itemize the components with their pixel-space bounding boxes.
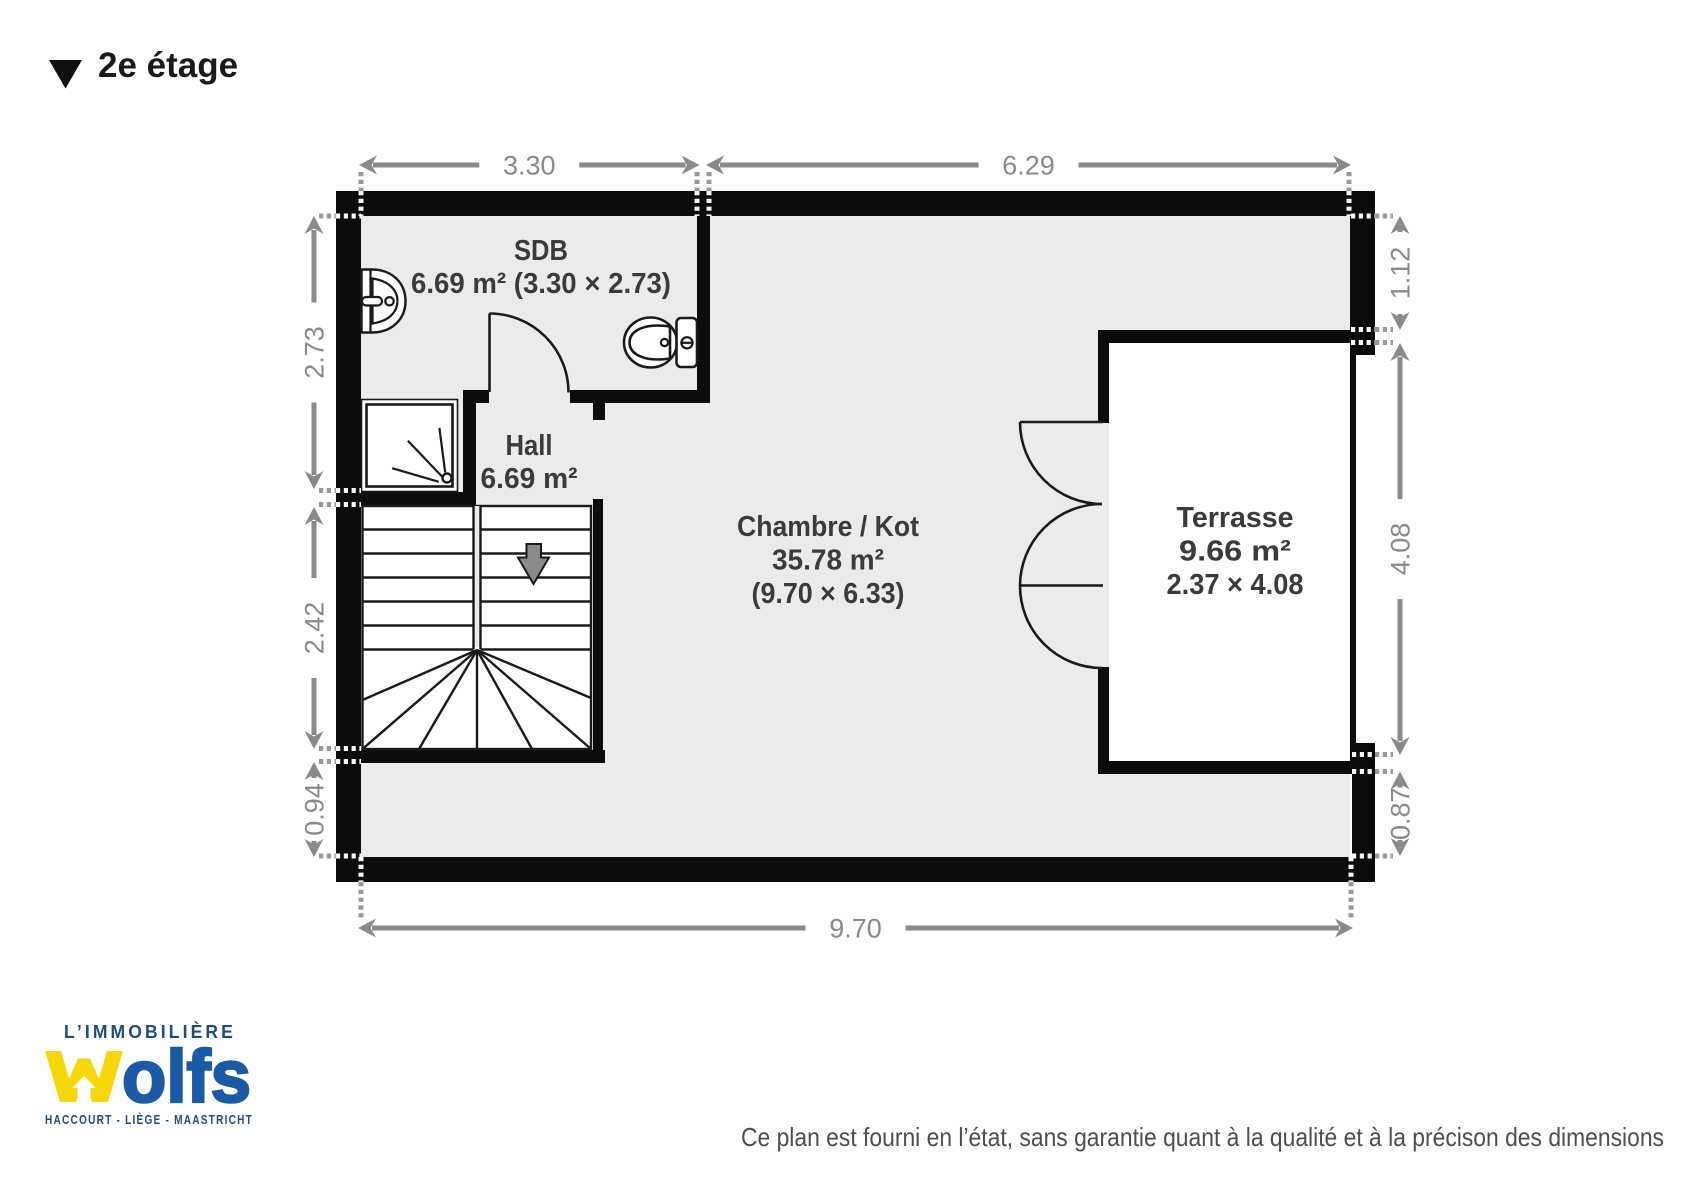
svg-text:Chambre / Kot: Chambre / Kot — [737, 511, 919, 543]
svg-text:9.66 m²: 9.66 m² — [1179, 536, 1291, 568]
svg-text:1.12: 1.12 — [1386, 247, 1416, 300]
svg-text:olfs: olfs — [122, 1035, 251, 1118]
svg-text:Terrasse: Terrasse — [1177, 502, 1294, 534]
svg-text:HACCOURT - LIÈGE - MAASTRICHT: HACCOURT - LIÈGE - MAASTRICHT — [45, 1112, 253, 1127]
svg-text:0.94: 0.94 — [300, 783, 330, 836]
svg-text:(9.70 × 6.33): (9.70 × 6.33) — [752, 578, 905, 610]
svg-text:3.30: 3.30 — [503, 151, 556, 181]
svg-text:2.73: 2.73 — [300, 326, 330, 379]
svg-text:6.69 m² (3.30 × 2.73): 6.69 m² (3.30 × 2.73) — [411, 268, 671, 300]
svg-text:SDB: SDB — [514, 235, 568, 267]
svg-text:2.37 × 4.08: 2.37 × 4.08 — [1167, 569, 1304, 601]
svg-text:35.78 m²: 35.78 m² — [772, 545, 884, 577]
svg-text:6.69 m²: 6.69 m² — [481, 463, 578, 495]
svg-text:Ce plan est fourni en l’état,: Ce plan est fourni en l’état, sans garan… — [741, 1122, 1664, 1152]
svg-text:Hall: Hall — [506, 430, 553, 462]
svg-text:9.70: 9.70 — [829, 914, 882, 944]
svg-text:4.08: 4.08 — [1386, 523, 1416, 576]
svg-text:2.42: 2.42 — [300, 602, 330, 655]
svg-text:6.29: 6.29 — [1002, 151, 1055, 181]
svg-text:0.87: 0.87 — [1386, 787, 1416, 840]
svg-text:2e étage: 2e étage — [98, 46, 238, 85]
